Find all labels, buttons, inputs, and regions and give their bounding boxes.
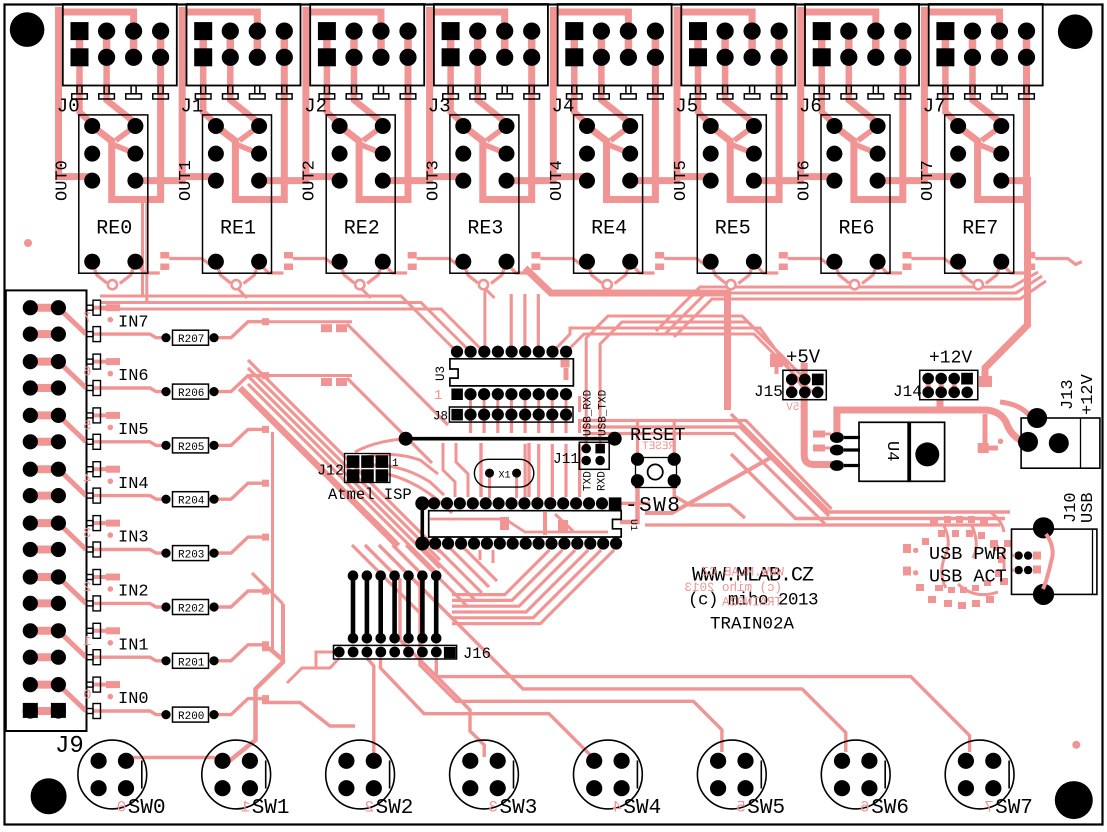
svg-text:J12: J12 <box>317 463 344 480</box>
svg-text:+12V: +12V <box>1079 373 1098 415</box>
svg-text:SW7: SW7 <box>995 797 1033 820</box>
svg-text:R205: R205 <box>178 442 204 454</box>
svg-text:RE6: RE6 <box>839 218 875 241</box>
svg-text:OUT3: OUT3 <box>424 160 443 201</box>
svg-text:USB_TXD: USB_TXD <box>598 389 610 436</box>
svg-text:USB_RXD: USB_RXD <box>583 389 595 436</box>
svg-text:1: 1 <box>434 388 442 404</box>
svg-text:2: 2 <box>83 580 91 596</box>
svg-text:Atmel ISP: Atmel ISP <box>328 486 412 504</box>
svg-text:J8: J8 <box>433 410 448 424</box>
svg-text:USB: USB <box>1079 492 1098 523</box>
svg-text:3: 3 <box>488 799 498 817</box>
svg-text:J9: J9 <box>55 733 84 760</box>
svg-text:IN3: IN3 <box>118 529 149 548</box>
svg-text:RE0: RE0 <box>96 218 132 241</box>
svg-text:R203: R203 <box>178 550 204 562</box>
svg-text:TRAIN02A: TRAIN02A <box>721 596 782 610</box>
svg-text:7: 7 <box>83 311 91 327</box>
svg-text:J2: J2 <box>304 96 327 118</box>
svg-text:IN0: IN0 <box>118 690 149 709</box>
svg-text:J6: J6 <box>799 96 822 118</box>
svg-text:3: 3 <box>83 526 91 542</box>
svg-text:1: 1 <box>83 634 91 650</box>
svg-text:SW2: SW2 <box>376 797 414 820</box>
svg-text:4: 4 <box>83 472 91 488</box>
svg-text:RE4: RE4 <box>591 218 627 241</box>
svg-text:RESET: RESET <box>642 441 675 453</box>
svg-text:J5: J5 <box>675 96 698 118</box>
svg-text:6: 6 <box>860 799 870 817</box>
svg-text:IN1: IN1 <box>118 636 149 655</box>
svg-text:SW5: SW5 <box>747 797 785 820</box>
svg-text:RE7: RE7 <box>962 218 998 241</box>
svg-text:SW0: SW0 <box>128 797 166 820</box>
svg-text:+12V: +12V <box>929 349 972 369</box>
svg-text:IN6: IN6 <box>118 367 149 386</box>
svg-text:R201: R201 <box>178 657 205 669</box>
svg-text:IN4: IN4 <box>118 475 149 494</box>
svg-text:RE2: RE2 <box>344 218 380 241</box>
svg-text:OUT6: OUT6 <box>796 160 815 201</box>
svg-text:USB PWR: USB PWR <box>929 544 1007 565</box>
svg-text:0: 0 <box>117 799 127 817</box>
svg-text:R207: R207 <box>178 334 204 346</box>
svg-text:R206: R206 <box>178 388 204 400</box>
svg-text:U3: U3 <box>434 366 448 381</box>
svg-text:WWW.MLAB.CZ: WWW.MLAB.CZ <box>701 566 784 580</box>
svg-text:USB ACT: USB ACT <box>929 567 1007 588</box>
svg-text:1: 1 <box>392 458 399 470</box>
svg-text:TXD: TXD <box>583 471 595 491</box>
svg-text:R200: R200 <box>178 711 204 723</box>
svg-text:X1: X1 <box>499 471 511 482</box>
svg-text:IN7: IN7 <box>118 313 149 332</box>
svg-text:(c) miho 2013: (c) miho 2013 <box>684 581 782 595</box>
svg-text:-SW8: -SW8 <box>625 495 681 518</box>
svg-text:J14: J14 <box>893 383 922 401</box>
svg-text:J1: J1 <box>181 96 204 118</box>
svg-text:U4: U4 <box>882 441 901 461</box>
svg-text:1: 1 <box>241 799 251 817</box>
svg-text:4: 4 <box>612 799 622 817</box>
svg-text:2: 2 <box>364 799 374 817</box>
svg-text:6: 6 <box>83 365 91 381</box>
svg-text:IN2: IN2 <box>118 583 149 602</box>
svg-text:SW1: SW1 <box>252 797 290 820</box>
svg-text:SW3: SW3 <box>500 797 538 820</box>
svg-text:SW6: SW6 <box>871 797 909 820</box>
svg-text:OUT0: OUT0 <box>53 160 72 201</box>
svg-text:J13: J13 <box>1059 379 1078 410</box>
svg-text:+5V: +5V <box>786 347 821 369</box>
svg-text:J7: J7 <box>923 96 946 118</box>
svg-text:RE5: RE5 <box>715 218 751 241</box>
svg-text:J16: J16 <box>463 645 491 663</box>
svg-text:+5V: +5V <box>786 402 806 414</box>
svg-text:R204: R204 <box>178 496 205 508</box>
svg-text:U1: U1 <box>627 519 638 531</box>
svg-text:OUT5: OUT5 <box>672 160 691 201</box>
svg-text:OUT1: OUT1 <box>177 160 196 201</box>
svg-text:0: 0 <box>83 688 91 704</box>
svg-text:J11: J11 <box>553 452 579 468</box>
svg-text:7: 7 <box>984 799 994 817</box>
svg-text:TRAIN02A: TRAIN02A <box>710 615 795 635</box>
svg-text:RE3: RE3 <box>467 218 503 241</box>
svg-text:J4: J4 <box>552 96 575 118</box>
svg-text:RE1: RE1 <box>220 218 256 241</box>
svg-text:SW4: SW4 <box>623 797 661 820</box>
svg-text:5: 5 <box>736 799 746 817</box>
svg-text:R202: R202 <box>178 604 204 616</box>
svg-text:OUT2: OUT2 <box>301 160 320 201</box>
svg-text:J15: J15 <box>754 383 783 401</box>
svg-text:RXD: RXD <box>597 471 609 491</box>
svg-text:IN5: IN5 <box>118 421 149 440</box>
svg-text:5: 5 <box>83 418 91 434</box>
svg-text:J3: J3 <box>428 96 451 118</box>
svg-text:OUT4: OUT4 <box>548 160 567 201</box>
svg-text:J0: J0 <box>57 96 80 118</box>
svg-text:OUT7: OUT7 <box>919 160 938 201</box>
